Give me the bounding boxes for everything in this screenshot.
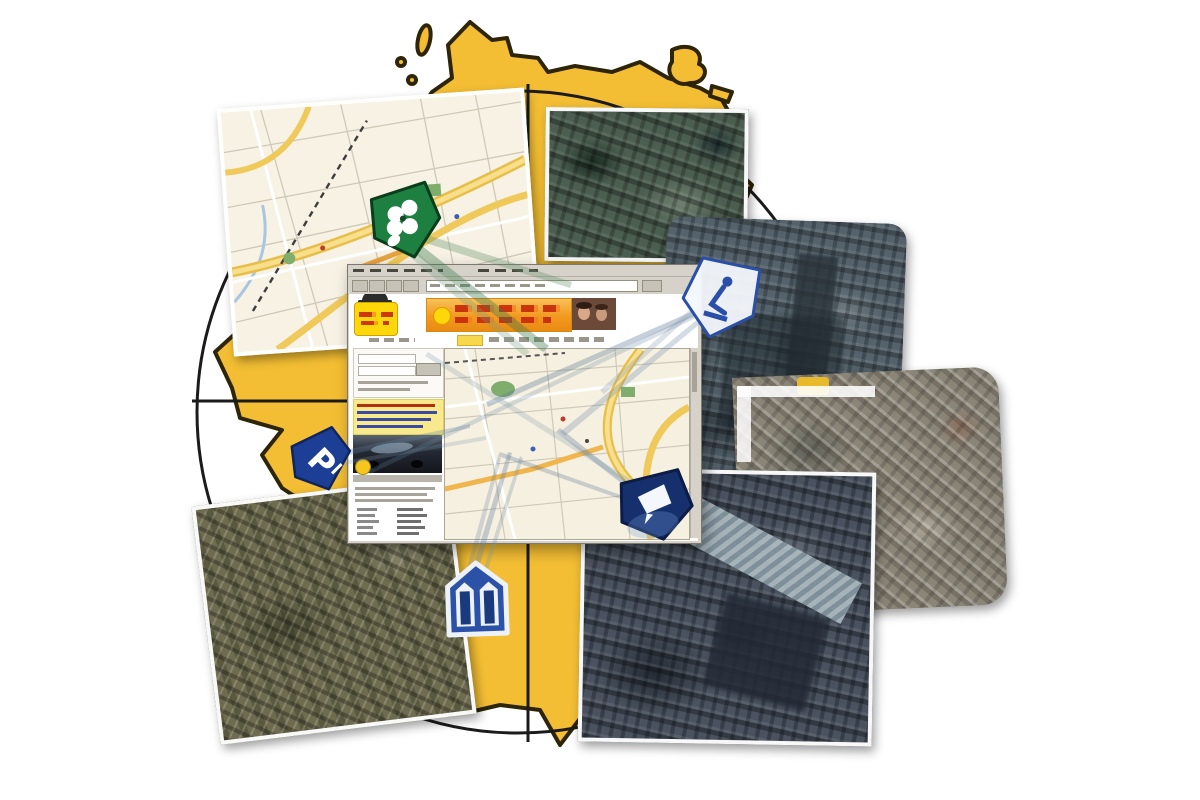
cathedral-dark-mass: [703, 593, 829, 712]
section-bar: [353, 475, 442, 482]
forward-button-blob: [369, 280, 385, 292]
details-list: [353, 506, 442, 538]
search-form: [353, 348, 444, 398]
home-button-blob: [403, 280, 419, 292]
banner-photo: [572, 298, 616, 330]
search-button-blob: [416, 363, 441, 376]
address-bar: [426, 280, 638, 292]
active-tab-chip: [457, 335, 483, 346]
input-field-1: [358, 354, 416, 364]
input-field-2: [358, 366, 416, 376]
banner-ad: [426, 298, 572, 332]
back-button-blob: [352, 280, 368, 292]
highlight-text-block: [353, 399, 444, 435]
nav-links-blob: [369, 338, 415, 342]
car-photo: [353, 435, 442, 473]
browser-toolbar: [348, 276, 701, 295]
browser-menu-bar: [348, 265, 701, 276]
go-button-blob: [642, 280, 662, 292]
collage-stage: P: [0, 0, 1200, 800]
sidebar: [353, 348, 442, 538]
reload-button-blob: [386, 280, 402, 292]
cathedral-marker: [443, 559, 512, 641]
site-logo: [354, 302, 398, 336]
tabs-blob: [489, 337, 609, 342]
building-marker: [610, 466, 701, 551]
banner-sun-icon: [433, 307, 451, 325]
